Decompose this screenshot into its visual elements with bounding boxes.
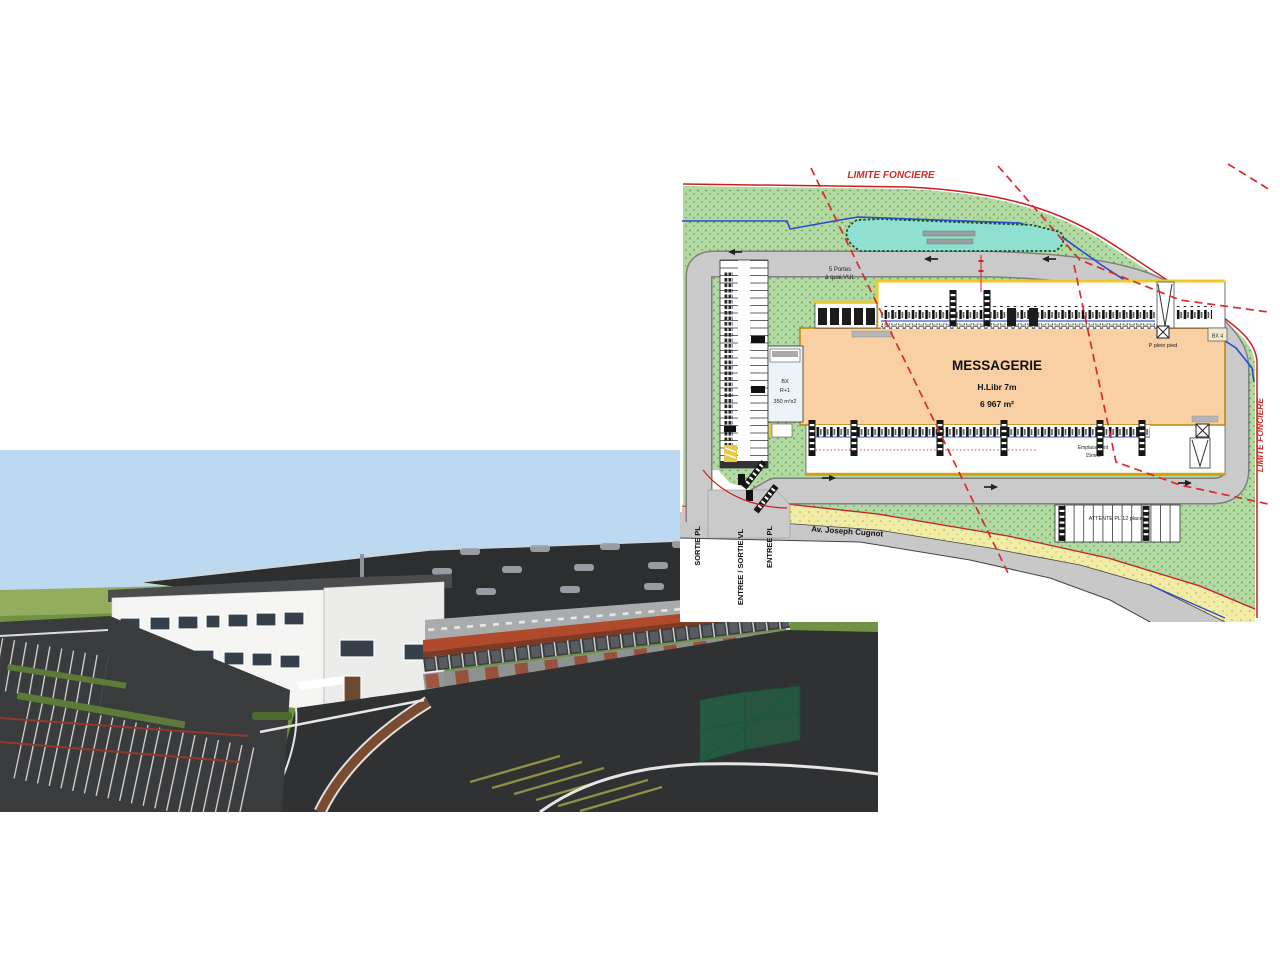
west-parking	[720, 260, 768, 468]
limite-fonciere-right-label: LIMITE FONCIERE	[1255, 398, 1265, 472]
gate-entree-sortie-vl-label: ENTREE / SORTIE VL	[736, 528, 745, 605]
warehouse-name-label: MESSAGERIE	[952, 358, 1042, 373]
plein-pied-label: P plein pied	[1149, 343, 1178, 349]
truck-icon	[1059, 506, 1066, 541]
truck-icon	[1143, 506, 1150, 541]
truck-icon	[809, 420, 816, 456]
truck-icon	[851, 420, 858, 456]
waiting-parking-label: ATTENTE PL 12 places	[1089, 516, 1146, 522]
warehouse-area-label: 6 967 m²	[980, 399, 1014, 409]
crossed-box-south	[1196, 424, 1209, 437]
waiting-parking	[1055, 505, 1180, 542]
bx4-label: BX 4	[1212, 334, 1223, 340]
truck-icon	[950, 290, 957, 326]
north-dock-row	[881, 306, 1155, 319]
truck-icon	[1001, 420, 1008, 456]
vul-docks	[813, 302, 877, 328]
office-label-1: BX	[781, 379, 789, 385]
vul-docks-label-2: à quai VUL	[825, 275, 855, 281]
vul-docks-label-1: 5 Portes	[829, 267, 851, 273]
south-apron-label-2: 15mns	[1085, 453, 1101, 459]
hedge	[252, 712, 292, 720]
south-apron-label-1: Emplacement	[1078, 445, 1109, 451]
warehouse-height-label: H.Libr 7m	[977, 382, 1017, 392]
crossed-box-north	[1157, 326, 1169, 338]
slide-canvas: LIMITE FONCIERE LIMITE FONCIERE MESSAGER…	[0, 0, 1280, 960]
truck-icon	[1139, 420, 1146, 456]
office-label-3: 350 m²x2	[774, 399, 797, 405]
office-label-2: R+1	[780, 388, 790, 394]
limite-fonciere-top-label: LIMITE FONCIERE	[847, 170, 935, 181]
truck-icon	[984, 290, 991, 326]
gate-entree-pl-label: ENTREE PL	[765, 526, 774, 569]
gate-sortie-pl-label: SORTIE PL	[693, 526, 702, 566]
site-plan: LIMITE FONCIERE LIMITE FONCIERE MESSAGER…	[680, 140, 1270, 622]
